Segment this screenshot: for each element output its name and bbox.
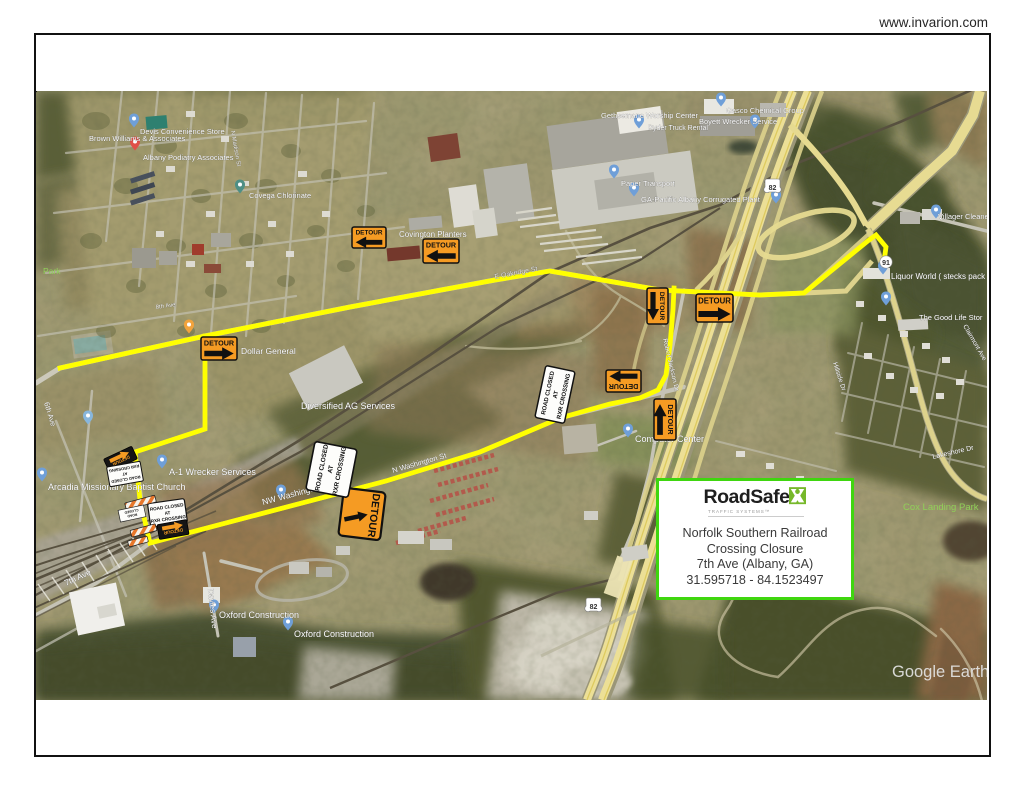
svg-text:Google Earth: Google Earth: [892, 663, 987, 681]
svg-text:A-1 Wrecker Services: A-1 Wrecker Services: [169, 467, 256, 477]
svg-text:Covega Chlorinate: Covega Chlorinate: [249, 191, 311, 200]
svg-text:DETOUR: DETOUR: [658, 292, 665, 321]
svg-text:AT: AT: [164, 510, 171, 516]
svg-text:Paper Transport: Paper Transport: [621, 179, 676, 188]
svg-text:Park: Park: [43, 266, 61, 276]
svg-text:Dollar General: Dollar General: [241, 346, 296, 356]
svg-text:GA-Pacific Albany Corrugated P: GA-Pacific Albany Corrugated Plant: [641, 195, 761, 204]
svg-text:DETOUR: DETOUR: [698, 297, 731, 306]
svg-text:Cox Landing Park: Cox Landing Park: [903, 502, 979, 513]
svg-text:Albany Podiatry Associates: Albany Podiatry Associates: [143, 153, 234, 162]
svg-text:The Good Life Stor: The Good Life Stor: [919, 313, 983, 322]
svg-text:Villager Cleane: Villager Cleane: [938, 212, 987, 221]
svg-text:82: 82: [590, 604, 598, 611]
svg-text:Liquor World ( stecks pack: Liquor World ( stecks pack: [891, 272, 986, 281]
svg-text:Gasco Chemical Group: Gasco Chemical Group: [726, 106, 804, 115]
svg-text:Oxford Construction: Oxford Construction: [294, 629, 374, 639]
svg-text:Ryder Truck Rental: Ryder Truck Rental: [648, 125, 708, 132]
svg-text:82: 82: [769, 185, 777, 192]
svg-text:91: 91: [882, 260, 890, 267]
svg-text:DETOUR: DETOUR: [426, 241, 457, 250]
svg-text:Diversified AG Services: Diversified AG Services: [301, 401, 396, 411]
svg-text:Boyett Wrecker Service: Boyett Wrecker Service: [699, 117, 777, 126]
svg-text:Gethsemane Worship Center: Gethsemane Worship Center: [601, 111, 698, 120]
svg-text:DETOUR: DETOUR: [356, 230, 383, 237]
svg-text:Covington Planters: Covington Planters: [399, 230, 467, 239]
svg-text:Oxford Construction: Oxford Construction: [219, 610, 299, 620]
svg-text:DETOUR: DETOUR: [666, 404, 675, 435]
svg-text:DETOUR: DETOUR: [204, 339, 235, 348]
svg-text:Brown Williams & Associates: Brown Williams & Associates: [89, 134, 186, 143]
svg-text:DETOUR: DETOUR: [609, 382, 638, 389]
